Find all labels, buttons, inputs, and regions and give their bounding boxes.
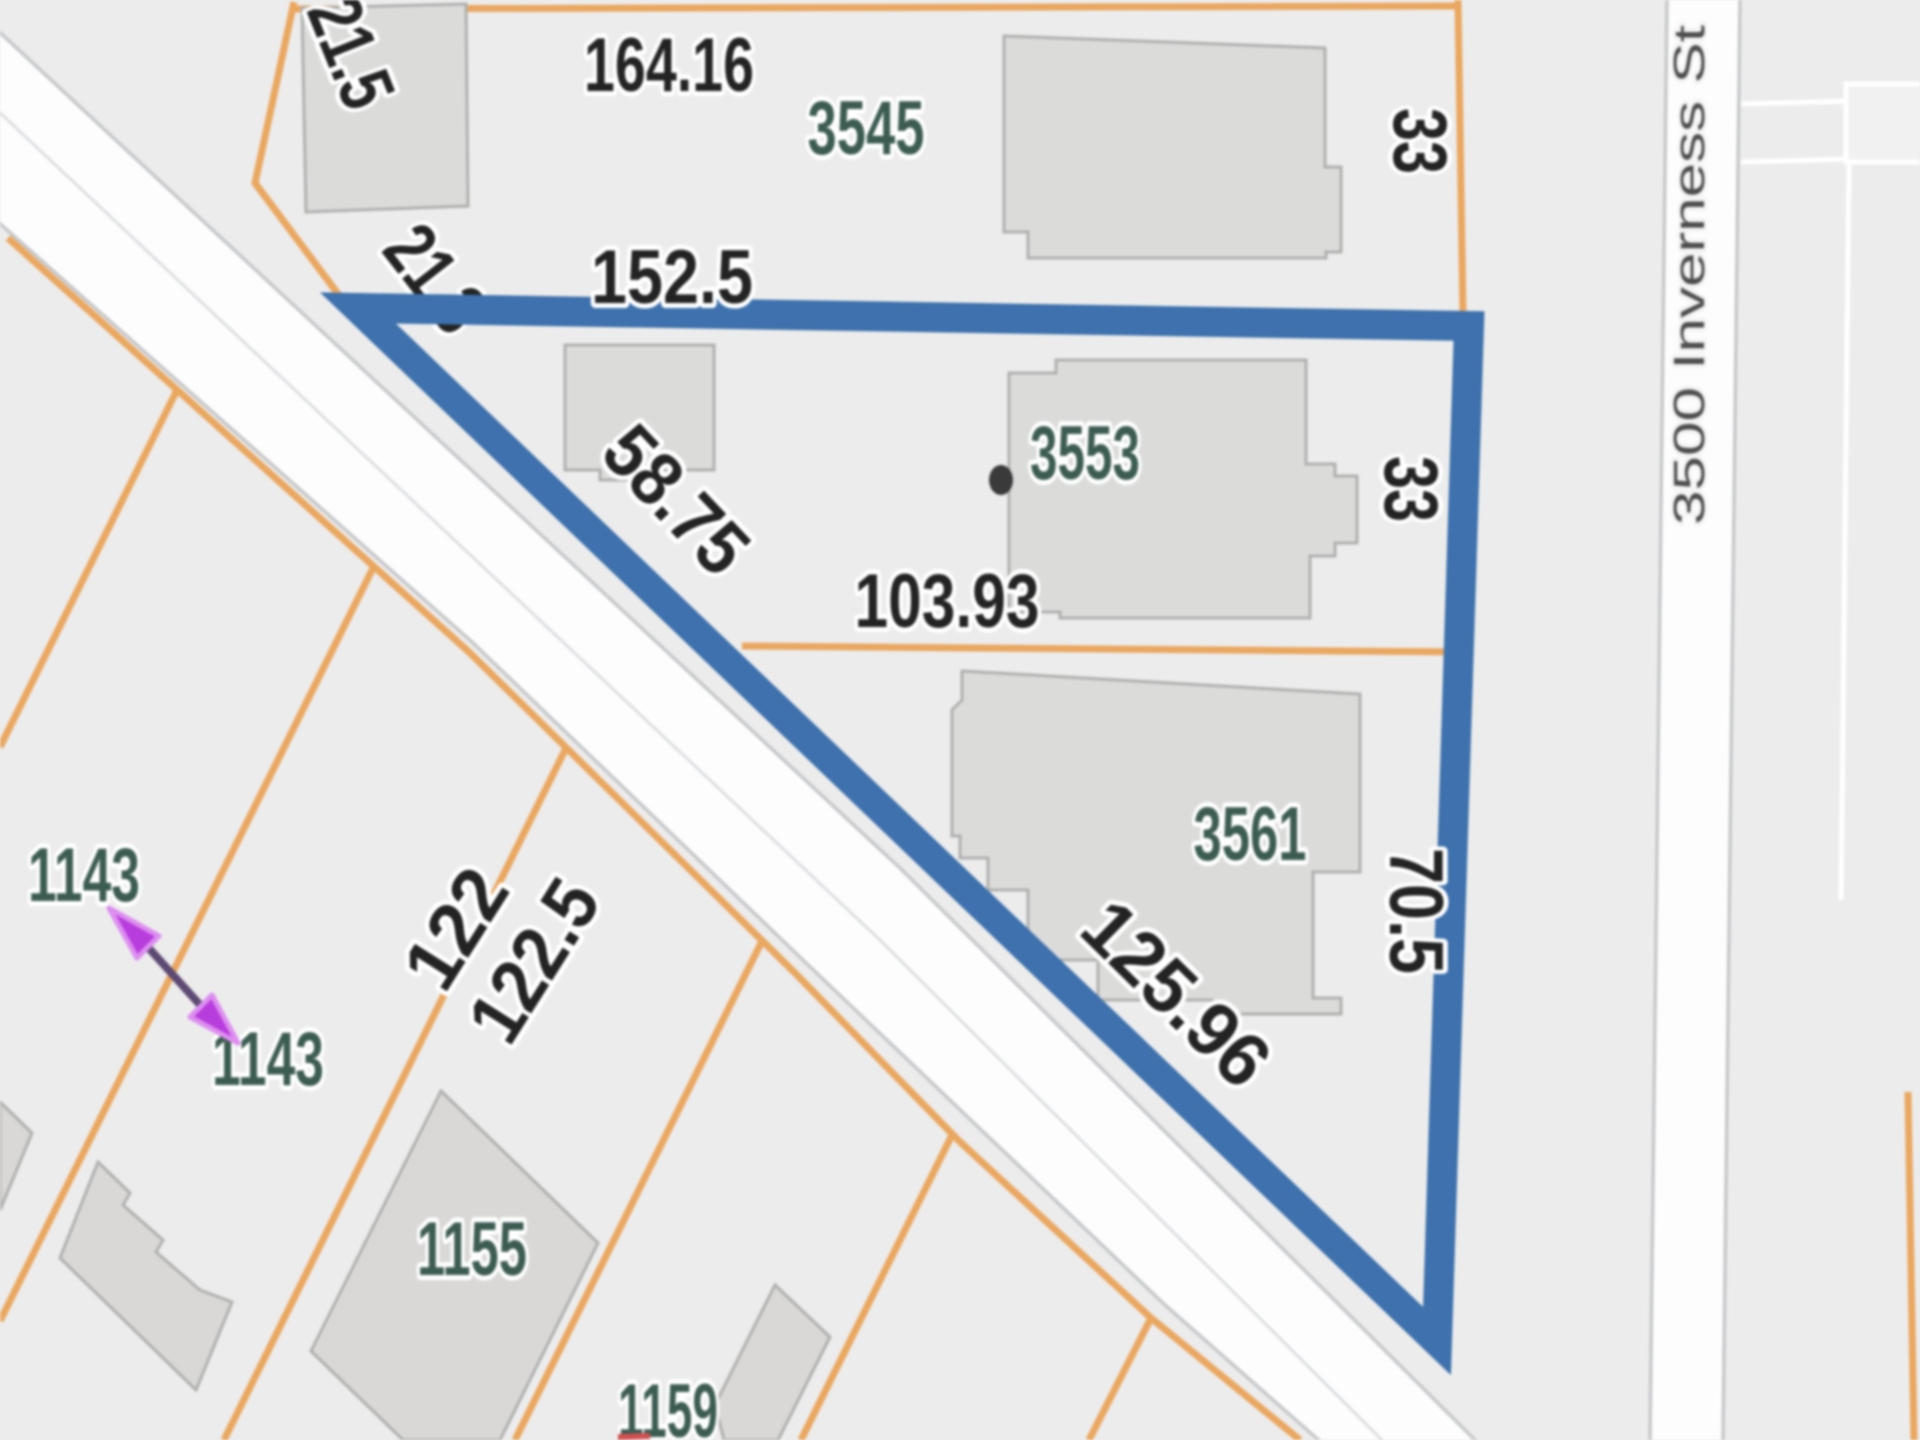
svg-text:33: 33 (1368, 456, 1453, 522)
svg-text:3545: 3545 (808, 86, 925, 171)
svg-text:103.93: 103.93 (855, 559, 1040, 644)
svg-text:3561: 3561 (1194, 792, 1307, 877)
svg-text:164.16: 164.16 (584, 23, 754, 108)
svg-text:1143: 1143 (28, 833, 140, 918)
svg-text:1159: 1159 (618, 1369, 718, 1440)
svg-text:33: 33 (1377, 108, 1462, 174)
svg-text:3553: 3553 (1030, 411, 1140, 496)
svg-text:1155: 1155 (417, 1207, 527, 1292)
svg-text:3500 Inverness St: 3500 Inverness St (1665, 25, 1714, 525)
svg-text:70.5: 70.5 (1373, 848, 1458, 974)
svg-text:152.5: 152.5 (591, 235, 753, 320)
